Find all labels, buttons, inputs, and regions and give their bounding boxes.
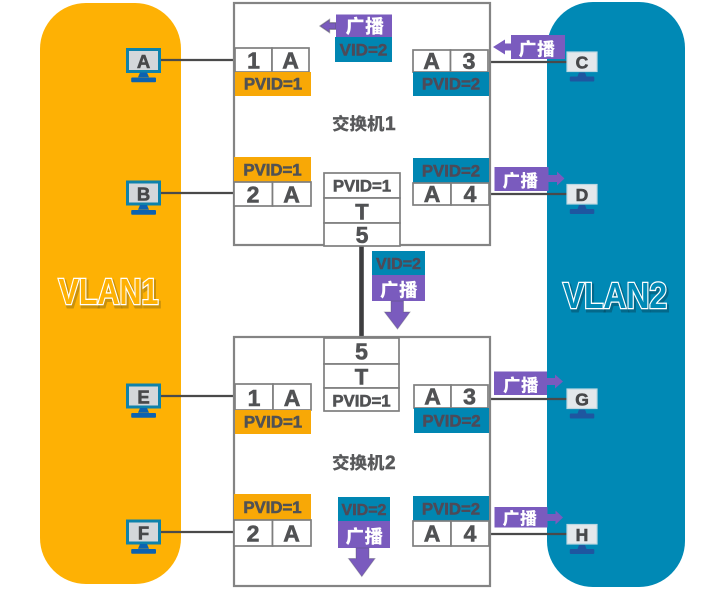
svg-text:B: B bbox=[137, 183, 150, 204]
svg-text:E: E bbox=[137, 386, 149, 407]
svg-text:T: T bbox=[355, 200, 369, 225]
svg-text:VID=2: VID=2 bbox=[342, 502, 387, 519]
svg-text:A: A bbox=[423, 48, 440, 74]
svg-text:PVID=2: PVID=2 bbox=[422, 500, 480, 519]
svg-text:A: A bbox=[282, 48, 299, 74]
svg-text:PVID=1: PVID=1 bbox=[333, 177, 391, 196]
svg-text:1: 1 bbox=[385, 114, 396, 135]
svg-text:H: H bbox=[576, 525, 589, 545]
svg-text:F: F bbox=[138, 522, 149, 543]
svg-text:4: 4 bbox=[464, 521, 477, 547]
svg-text:PVID=2: PVID=2 bbox=[422, 412, 480, 431]
svg-text:G: G bbox=[575, 390, 589, 410]
svg-text:PVID=1: PVID=1 bbox=[332, 392, 390, 411]
svg-text:A: A bbox=[424, 384, 441, 410]
svg-text:PVID=1: PVID=1 bbox=[244, 75, 302, 94]
svg-text:5: 5 bbox=[355, 339, 368, 365]
svg-text:PVID=1: PVID=1 bbox=[243, 161, 301, 180]
svg-text:1: 1 bbox=[247, 48, 260, 74]
svg-text:VLAN2: VLAN2 bbox=[563, 275, 667, 316]
svg-text:PVID=2: PVID=2 bbox=[422, 75, 480, 94]
svg-text:5: 5 bbox=[356, 222, 369, 248]
svg-text:PVID=1: PVID=1 bbox=[244, 413, 302, 432]
svg-text:A: A bbox=[284, 385, 301, 411]
svg-text:A: A bbox=[283, 521, 300, 547]
svg-text:A: A bbox=[137, 51, 150, 72]
svg-text:2: 2 bbox=[247, 182, 260, 208]
svg-text:PVID=1: PVID=1 bbox=[243, 498, 301, 517]
svg-text:4: 4 bbox=[464, 181, 477, 207]
svg-text:A: A bbox=[283, 182, 300, 208]
svg-text:A: A bbox=[424, 181, 441, 207]
svg-text:3: 3 bbox=[463, 384, 476, 410]
svg-text:VID=2: VID=2 bbox=[376, 256, 421, 273]
svg-text:C: C bbox=[576, 53, 589, 73]
svg-text:2: 2 bbox=[247, 521, 260, 547]
svg-text:T: T bbox=[355, 365, 369, 390]
svg-text:3: 3 bbox=[463, 48, 476, 74]
svg-text:D: D bbox=[576, 185, 589, 205]
svg-text:2: 2 bbox=[385, 453, 396, 474]
svg-text:A: A bbox=[424, 521, 441, 547]
svg-text:VLAN1: VLAN1 bbox=[59, 271, 159, 312]
svg-text:VID=2: VID=2 bbox=[340, 41, 388, 60]
svg-text:1: 1 bbox=[248, 385, 261, 411]
svg-text:PVID=2: PVID=2 bbox=[422, 162, 480, 181]
